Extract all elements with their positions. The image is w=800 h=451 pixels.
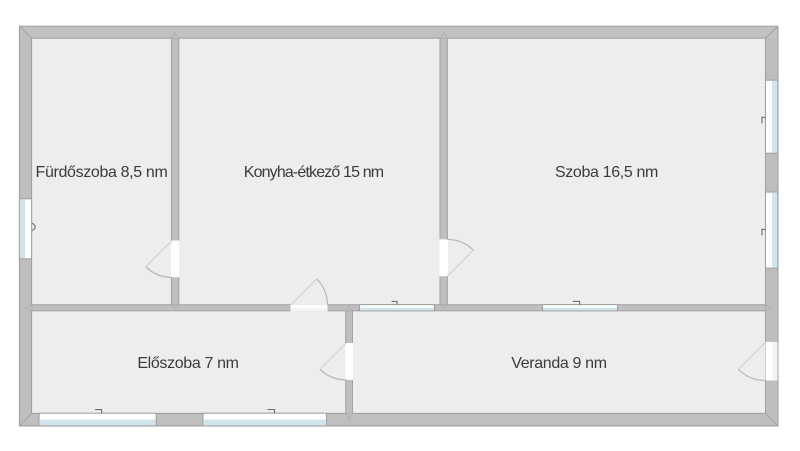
svg-text:Konyha-étkező 15 nm: Konyha-étkező 15 nm <box>244 164 384 181</box>
svg-text:Szoba 16,5 nm: Szoba 16,5 nm <box>555 164 658 181</box>
svg-text:Előszoba 7 nm: Előszoba 7 nm <box>137 355 238 372</box>
svg-text:Fürdőszoba 8,5 nm: Fürdőszoba 8,5 nm <box>36 164 168 181</box>
svg-text:Veranda 9 nm: Veranda 9 nm <box>511 355 606 372</box>
